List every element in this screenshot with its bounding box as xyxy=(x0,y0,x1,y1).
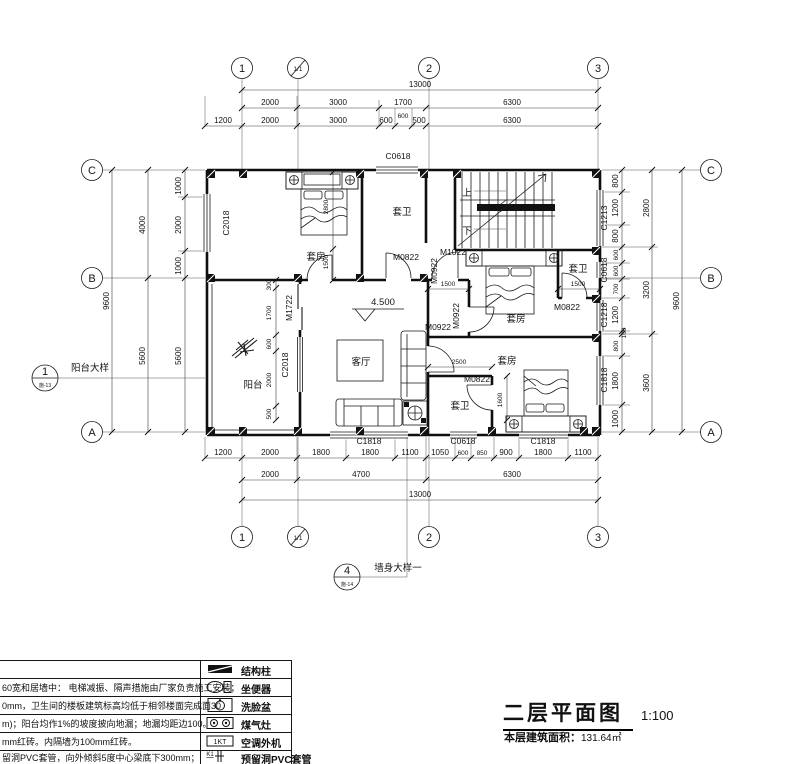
window-label: C1818 xyxy=(530,436,555,446)
drawing-title-block: 二层平面图1:100 xyxy=(503,697,674,731)
dim: 5600 xyxy=(138,347,147,365)
door-label: M0922 xyxy=(451,303,461,329)
axis-1-top: 1 xyxy=(239,63,245,75)
window-label: C0618 xyxy=(450,436,475,446)
floor-plan-sheet: 4.500 1 1/1 2 3 1 1/1 2 3 C B A C B A 1 … xyxy=(0,0,804,764)
dim: 5600 xyxy=(174,347,183,365)
dim: 1100 xyxy=(401,448,419,457)
legend-label: 结构柱 xyxy=(241,663,271,678)
dim: 800 xyxy=(611,174,620,188)
room-label-bath1: 套卫 xyxy=(392,206,412,218)
dim: 3200 xyxy=(642,281,651,299)
legend-label: 空调外机 xyxy=(241,735,281,750)
ac-outdoor-unit-icon: 1KT xyxy=(203,733,237,749)
axis-1-1-bottom: 1/1 xyxy=(293,535,302,542)
room-label-bath3: 套卫 xyxy=(450,400,470,412)
callout-wall-sheet: 施-14 xyxy=(341,581,353,588)
note-line: 0mm，卫生间的楼板建筑标高均低于相邻楼面完成面30 xyxy=(2,699,221,712)
legend-label: 预留洞PVC套管 xyxy=(241,751,312,764)
drawing-title: 二层平面图 xyxy=(503,697,633,731)
axis-2-bottom: 2 xyxy=(426,532,432,544)
window-label: C1818 xyxy=(599,367,609,392)
bed-top-left xyxy=(286,172,358,235)
dim: 2000 xyxy=(174,216,183,234)
window-label: C1218 xyxy=(599,302,609,327)
dim: 1000 xyxy=(174,177,183,195)
floor-plan-drawing: 4.500 1 1/1 2 3 1 1/1 2 3 C B A C B A 1 … xyxy=(0,0,804,640)
callout-balcony-number: 1 xyxy=(42,366,48,378)
dim: 2000 xyxy=(266,372,273,387)
dim: 1000 xyxy=(174,257,183,275)
dim: 1100 xyxy=(574,448,592,457)
axis-bubbles: 1 1/1 2 3 1 1/1 2 3 C B A C B A xyxy=(82,58,722,548)
dim: 1800 xyxy=(361,448,379,457)
ac-unit-text: 1KT xyxy=(214,739,228,746)
room-label-living: 客厅 xyxy=(351,356,371,368)
gas-stove-icon xyxy=(203,715,237,731)
door-label: M1722 xyxy=(284,295,294,321)
axis-1-bottom: 1 xyxy=(239,532,245,544)
callout-balcony-label: 阳台大样 xyxy=(71,362,109,374)
dimension-text-top: 13000 2000 3000 1700 6300 600 1200 2000 … xyxy=(214,80,521,125)
dim: 600 xyxy=(266,338,273,349)
dim: 100 xyxy=(621,327,628,338)
dim: 2000 xyxy=(261,98,279,107)
axis-3-bottom: 3 xyxy=(595,532,601,544)
drawing-scale: 1:100 xyxy=(641,708,674,723)
window-label: C0618 xyxy=(385,151,410,161)
callout-wall-number: 4 xyxy=(344,565,350,577)
dim: 2000 xyxy=(261,116,279,125)
elevation-value: 4.500 xyxy=(371,297,395,308)
dim: 2000 xyxy=(261,470,279,479)
sofa-set xyxy=(336,331,427,426)
dim: 3000 xyxy=(329,98,347,107)
dim: 2500 xyxy=(452,359,467,366)
axis-B-right: B xyxy=(707,273,714,285)
dim: 900 xyxy=(499,448,513,457)
axis-grid-lines xyxy=(103,79,700,526)
bed-bottom-right xyxy=(506,370,586,432)
dim: 700 xyxy=(613,283,620,294)
axis-1-1-top: 1/1 xyxy=(293,66,302,73)
room-label-bed3: 套房 xyxy=(497,355,516,367)
axis-C-right: C xyxy=(707,165,715,177)
dim: 1000 xyxy=(611,410,620,428)
note-line: m)；阳台均作1%的坡度披向地漏；地漏均距边100。 xyxy=(2,717,212,730)
dim: 800 xyxy=(611,229,620,243)
room-label-bed1: 套房 xyxy=(306,251,325,263)
dim: 2800 xyxy=(323,199,330,214)
window-label: C2018 xyxy=(280,352,290,377)
dim: 500 xyxy=(412,116,426,125)
dim: 2000 xyxy=(261,448,279,457)
pvc-mark-text: K1 xyxy=(206,752,214,758)
dim: 1200 xyxy=(611,199,620,217)
dim: 1800 xyxy=(534,448,552,457)
door-label: M1022 xyxy=(440,247,466,257)
note-line: 留洞PVC套管，向外倾斜5度中心梁底下300mm； xyxy=(2,751,200,764)
dim: 1200 xyxy=(611,306,620,324)
elevation-marker: 4.500 xyxy=(352,297,404,321)
axis-A-right: A xyxy=(707,427,715,439)
dim: 600 xyxy=(379,116,393,125)
dim: 1500 xyxy=(571,281,586,288)
legend-label: 煤气灶 xyxy=(241,717,271,732)
dim: 4700 xyxy=(352,470,370,479)
window-label: C2018 xyxy=(221,210,231,235)
washbasin-icon xyxy=(203,697,237,713)
structural-column-icon xyxy=(203,661,237,677)
pvc-sleeve-icon: K1 xyxy=(203,749,237,764)
room-label-bath2: 套卫 xyxy=(568,263,588,275)
dim: 1050 xyxy=(431,448,449,457)
floor-area-label: 本层建筑面积： xyxy=(504,732,581,744)
door-label: M0822 xyxy=(554,302,580,312)
dim: 3000 xyxy=(329,116,347,125)
dim: 3600 xyxy=(642,374,651,392)
stair-down-label: 下 xyxy=(462,226,472,237)
legend-label: 洗脸盆 xyxy=(241,699,271,714)
note-line: mm红砖。内隔墙为100mm红砖。 xyxy=(2,735,137,748)
window-label: C1818 xyxy=(356,436,381,446)
floor-area-value: 131.64㎡ xyxy=(581,733,622,744)
dim: 600 xyxy=(458,450,469,457)
dim-total-left: 9600 xyxy=(102,292,111,310)
room-label-bed2: 套房 xyxy=(506,313,525,325)
window-label: C1213 xyxy=(599,205,609,230)
door-label: M0922 xyxy=(429,258,439,284)
room-label-balcony: 阳台 xyxy=(243,379,262,391)
plant-icon xyxy=(232,338,257,358)
floor-area-line: 本层建筑面积：131.64㎡ xyxy=(504,729,622,745)
dim: 500 xyxy=(266,408,273,419)
axis-B-left: B xyxy=(88,273,95,285)
dimension-text-bottom: C1818 C0618 C1818 1200 2000 1800 1800 11… xyxy=(214,436,592,499)
dim: 600 xyxy=(613,249,620,260)
dim: 1700 xyxy=(266,305,273,320)
dim: 1200 xyxy=(214,448,232,457)
dim: 6300 xyxy=(503,98,521,107)
dim: 1800 xyxy=(312,448,330,457)
door-label: M0822 xyxy=(393,252,419,262)
dim: 2800 xyxy=(642,199,651,217)
door-label: M0822 xyxy=(464,374,490,384)
dim-total-bottom: 13000 xyxy=(409,490,432,499)
toilet-icon xyxy=(203,679,237,695)
room-labels: 套房 套卫 套房 套卫 套房 套卫 客厅 阳台 上 下 xyxy=(243,188,588,412)
dim: 600 xyxy=(398,113,409,120)
window-label: C0618 xyxy=(599,257,609,282)
stair-up-label: 上 xyxy=(462,188,472,199)
dim: 4000 xyxy=(138,216,147,234)
dim: 1700 xyxy=(394,98,412,107)
axis-C-left: C xyxy=(88,165,96,177)
bed-middle-right xyxy=(466,250,562,314)
dim: 800 xyxy=(613,340,620,351)
dimension-text-right: C1213 C0618 C1218 C1818 800 1200 800 600… xyxy=(599,174,681,428)
staircase xyxy=(458,172,555,248)
dim: 600 xyxy=(613,265,620,276)
axis-3-top: 3 xyxy=(595,63,601,75)
dim: 1800 xyxy=(611,372,620,390)
callout-balcony-sheet: 施-13 xyxy=(39,382,51,389)
dim: 300 xyxy=(266,279,273,290)
callout-wall-label: 墙身大样一 xyxy=(374,562,422,574)
dim: 1200 xyxy=(214,116,232,125)
axis-2-top: 2 xyxy=(426,63,432,75)
dim-total-top: 13000 xyxy=(409,80,432,89)
dim: 1600 xyxy=(497,392,504,407)
door-label: M0922 xyxy=(425,322,451,332)
dim: 6300 xyxy=(503,116,521,125)
dim: 6300 xyxy=(503,470,521,479)
dim: 1500 xyxy=(441,281,456,288)
axis-A-left: A xyxy=(88,427,96,439)
legend-label: 坐便器 xyxy=(241,681,271,696)
dim-total-right: 9600 xyxy=(672,292,681,310)
dim: 850 xyxy=(477,450,488,457)
